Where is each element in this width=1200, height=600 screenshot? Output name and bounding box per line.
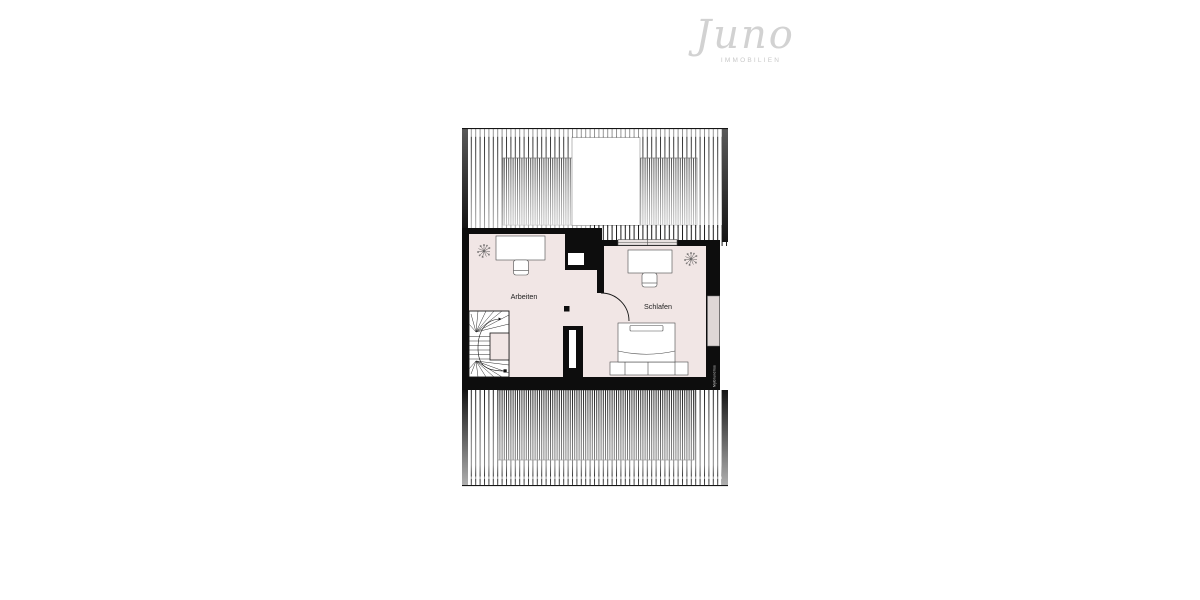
staircase [469, 311, 509, 377]
floor-plan-page: Juno IMMOBILIEN [0, 0, 1200, 600]
roof-edge-left-lower [462, 390, 468, 486]
shaft-opening [569, 330, 576, 368]
roof-edge-right [722, 128, 728, 242]
watermark-text: MyGrundriss [712, 365, 716, 387]
agency-logo: Juno IMMOBILIEN [655, 14, 835, 65]
logo-brand-text: Juno [655, 14, 835, 56]
rooms: Arbeiten Schlafen MyGrundriss [462, 228, 720, 390]
bedroom-side-window [708, 296, 720, 346]
pillar [564, 306, 570, 312]
stair-start-marker [504, 369, 507, 372]
roof-dormer-window [572, 138, 640, 226]
room-label-sleep: Schlafen [644, 302, 672, 311]
roof-hatch-lower [462, 390, 728, 486]
room-label-work: Arbeiten [511, 292, 538, 301]
wall-niche [568, 253, 584, 265]
logo-tagline-text: IMMOBILIEN [655, 57, 835, 65]
roof-edge-left [462, 128, 468, 228]
roof-edge-right-lower [722, 390, 728, 486]
floorplan-drawing: Arbeiten Schlafen MyGrundriss [462, 128, 728, 488]
